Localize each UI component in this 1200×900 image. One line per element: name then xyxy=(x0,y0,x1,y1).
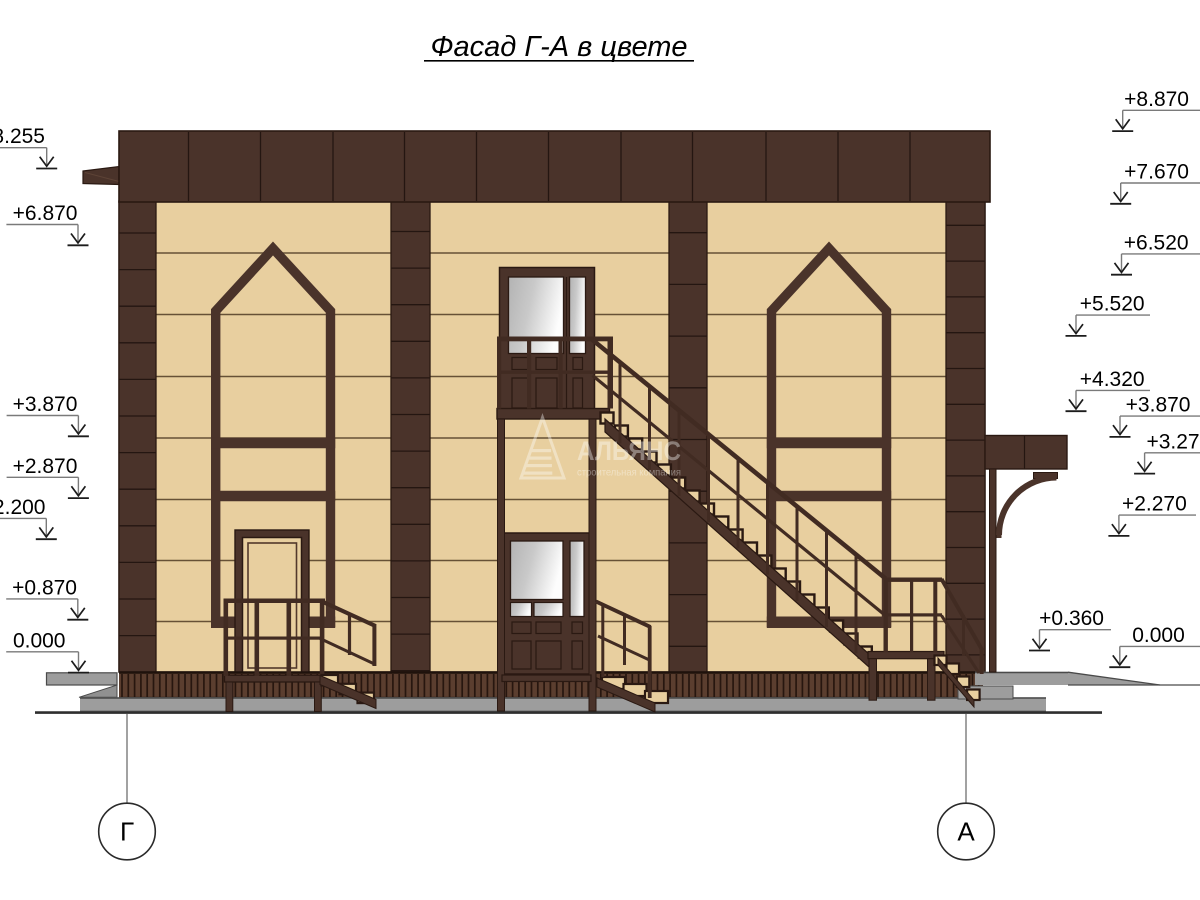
svg-text:+8.255: +8.255 xyxy=(0,125,45,148)
svg-text:+0.870: +0.870 xyxy=(12,576,77,599)
svg-text:строительная компания: строительная компания xyxy=(577,467,681,479)
svg-text:+3.870: +3.870 xyxy=(1126,394,1191,417)
svg-text:+5.520: +5.520 xyxy=(1080,293,1145,316)
svg-text:+2.200: +2.200 xyxy=(0,496,46,519)
svg-text:+8.870: +8.870 xyxy=(1124,88,1189,111)
svg-text:+7.670: +7.670 xyxy=(1124,161,1189,184)
svg-text:+2.270: +2.270 xyxy=(1122,493,1187,516)
svg-text:А: А xyxy=(957,817,975,847)
svg-text:+3.870: +3.870 xyxy=(13,393,78,416)
svg-text:+6.520: +6.520 xyxy=(1124,231,1189,254)
svg-text:+4.320: +4.320 xyxy=(1080,368,1145,391)
svg-text:АЛЬЯНС: АЛЬЯНС xyxy=(577,436,681,466)
svg-text:Фасад Г-А в цвете: Фасад Г-А в цвете xyxy=(430,31,687,63)
svg-text:0.000: 0.000 xyxy=(1132,624,1185,647)
svg-text:Г: Г xyxy=(120,817,134,847)
svg-text:+6.870: +6.870 xyxy=(13,202,78,225)
svg-text:0.000: 0.000 xyxy=(13,629,66,652)
svg-text:+0.360: +0.360 xyxy=(1039,607,1104,630)
svg-text:+2.870: +2.870 xyxy=(13,455,78,478)
svg-text:+3.27: +3.27 xyxy=(1146,430,1199,453)
